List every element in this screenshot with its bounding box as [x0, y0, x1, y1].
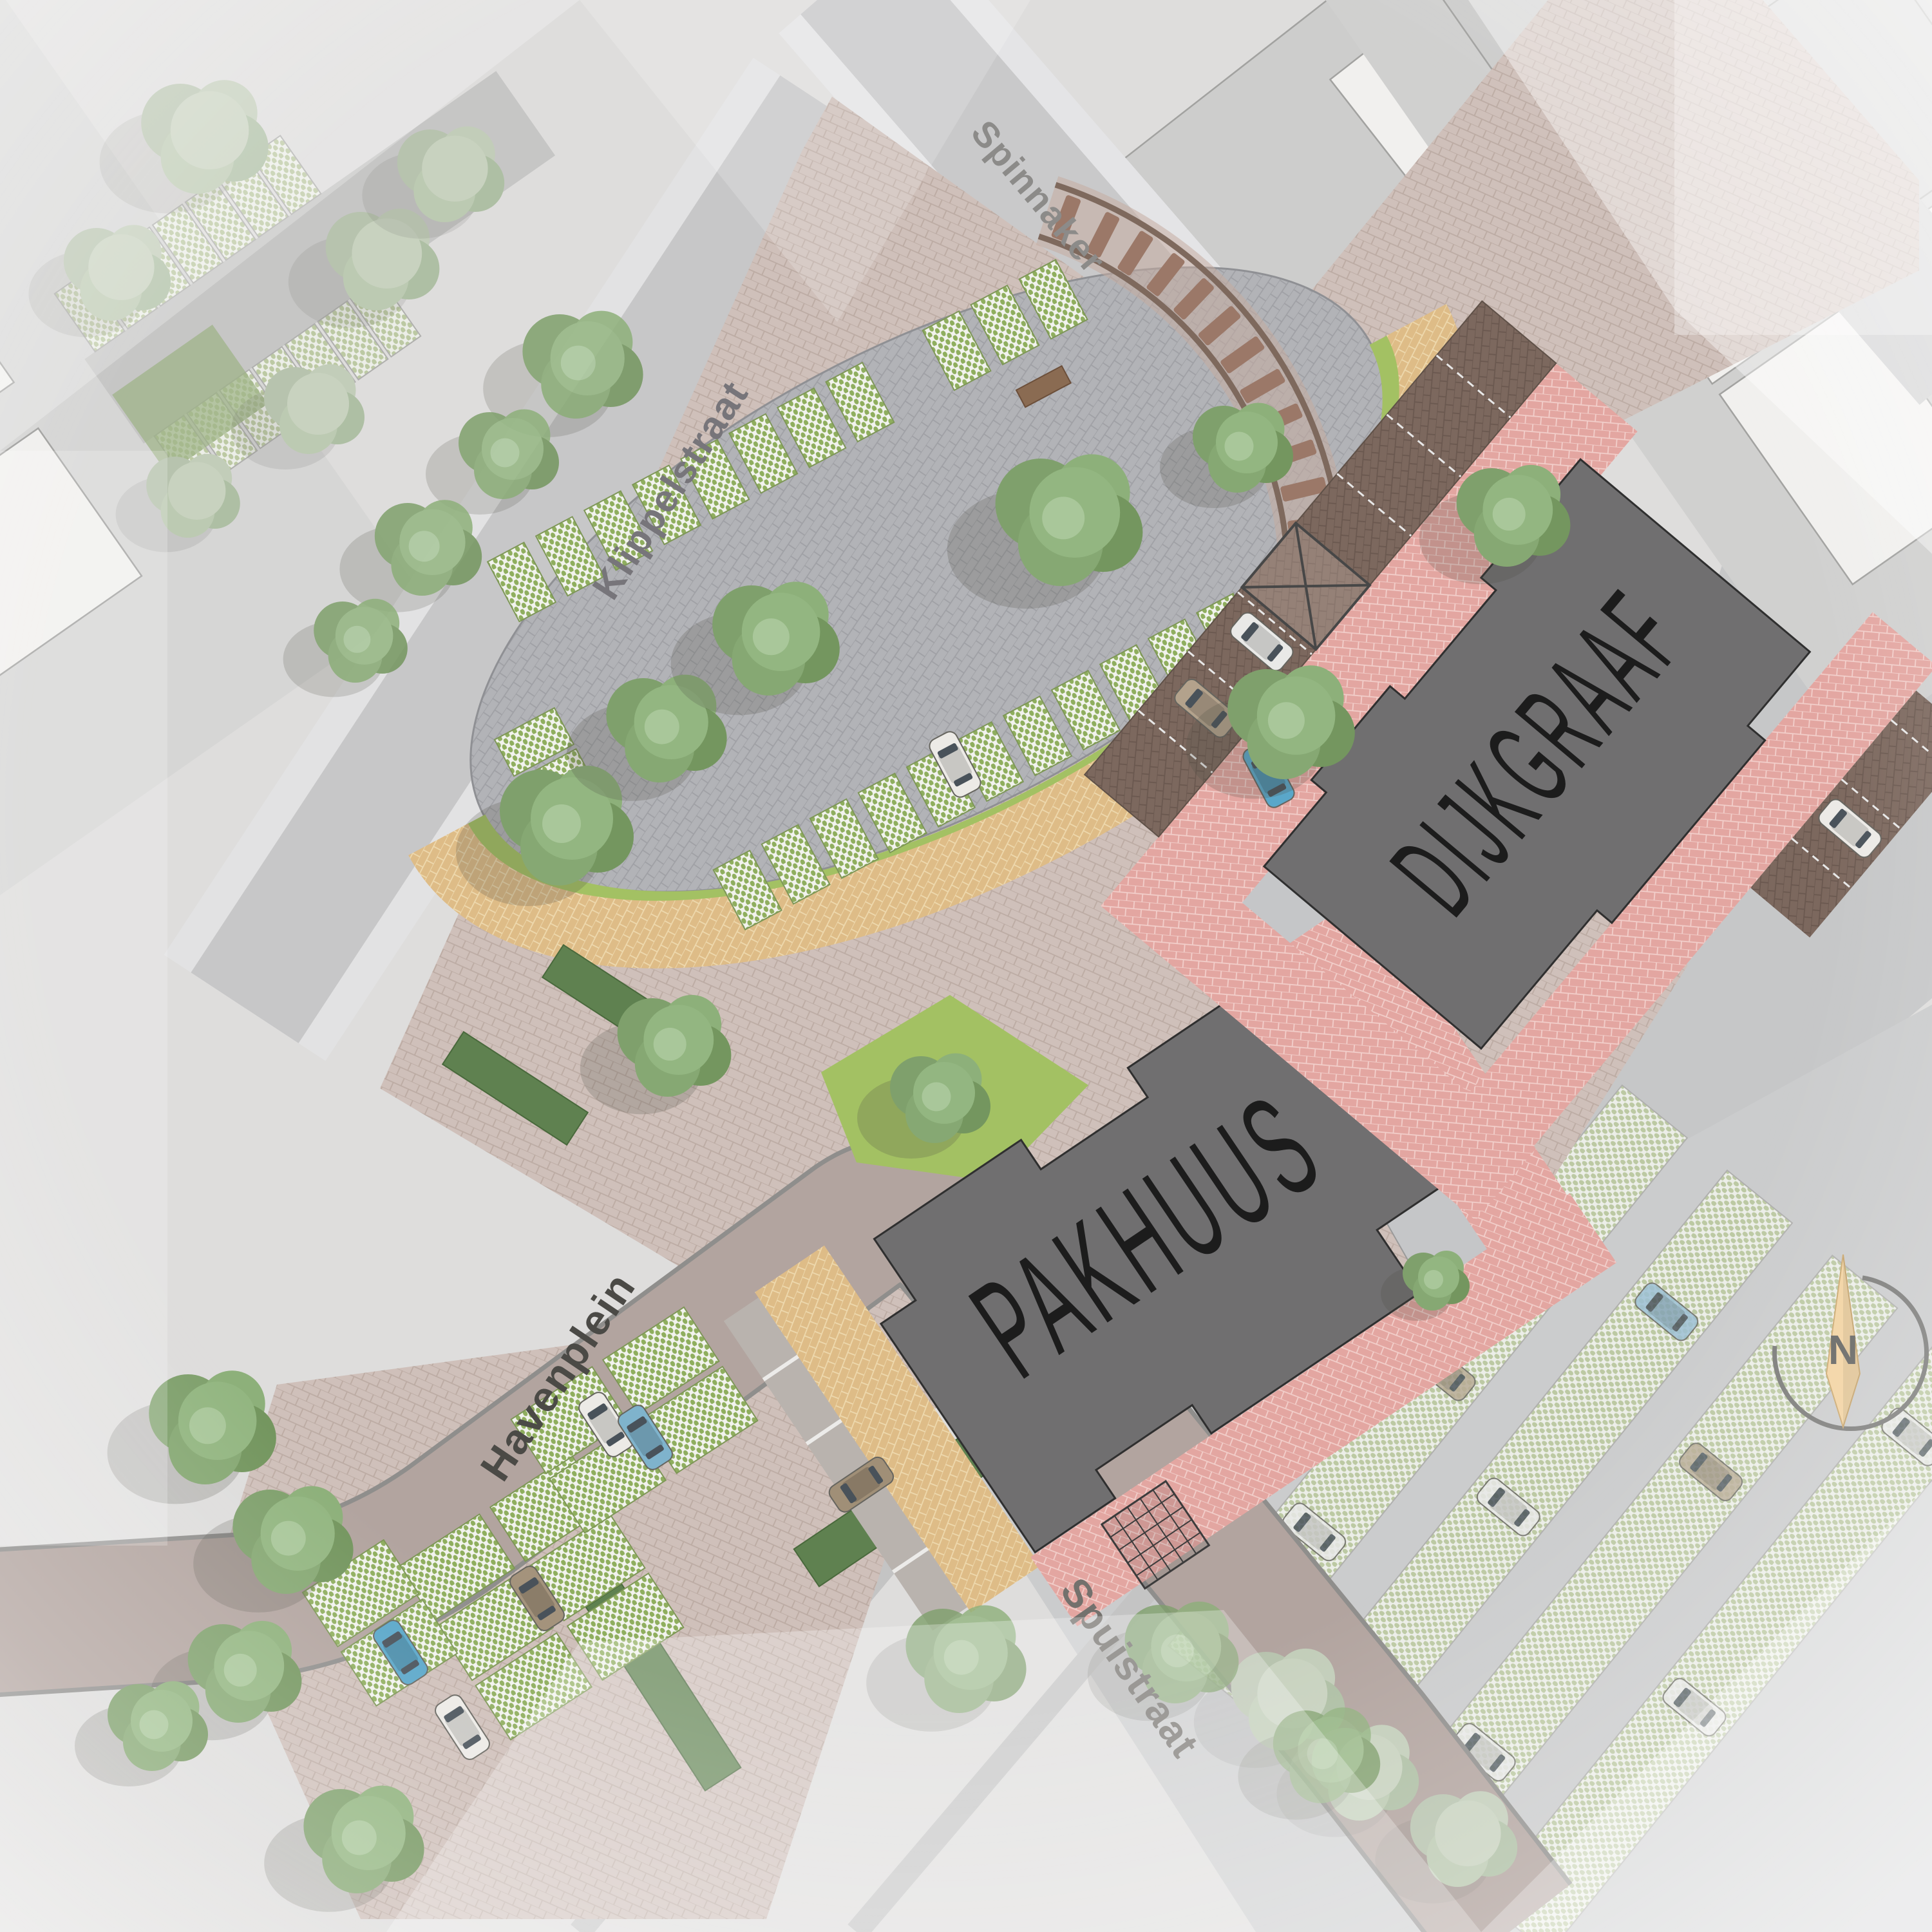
fog-overlay — [0, 0, 1932, 1932]
site-plan-page: PAKHUUS DIJKGRAAF — [0, 0, 1932, 1932]
site-plan-canvas: PAKHUUS DIJKGRAAF — [0, 0, 1932, 1932]
